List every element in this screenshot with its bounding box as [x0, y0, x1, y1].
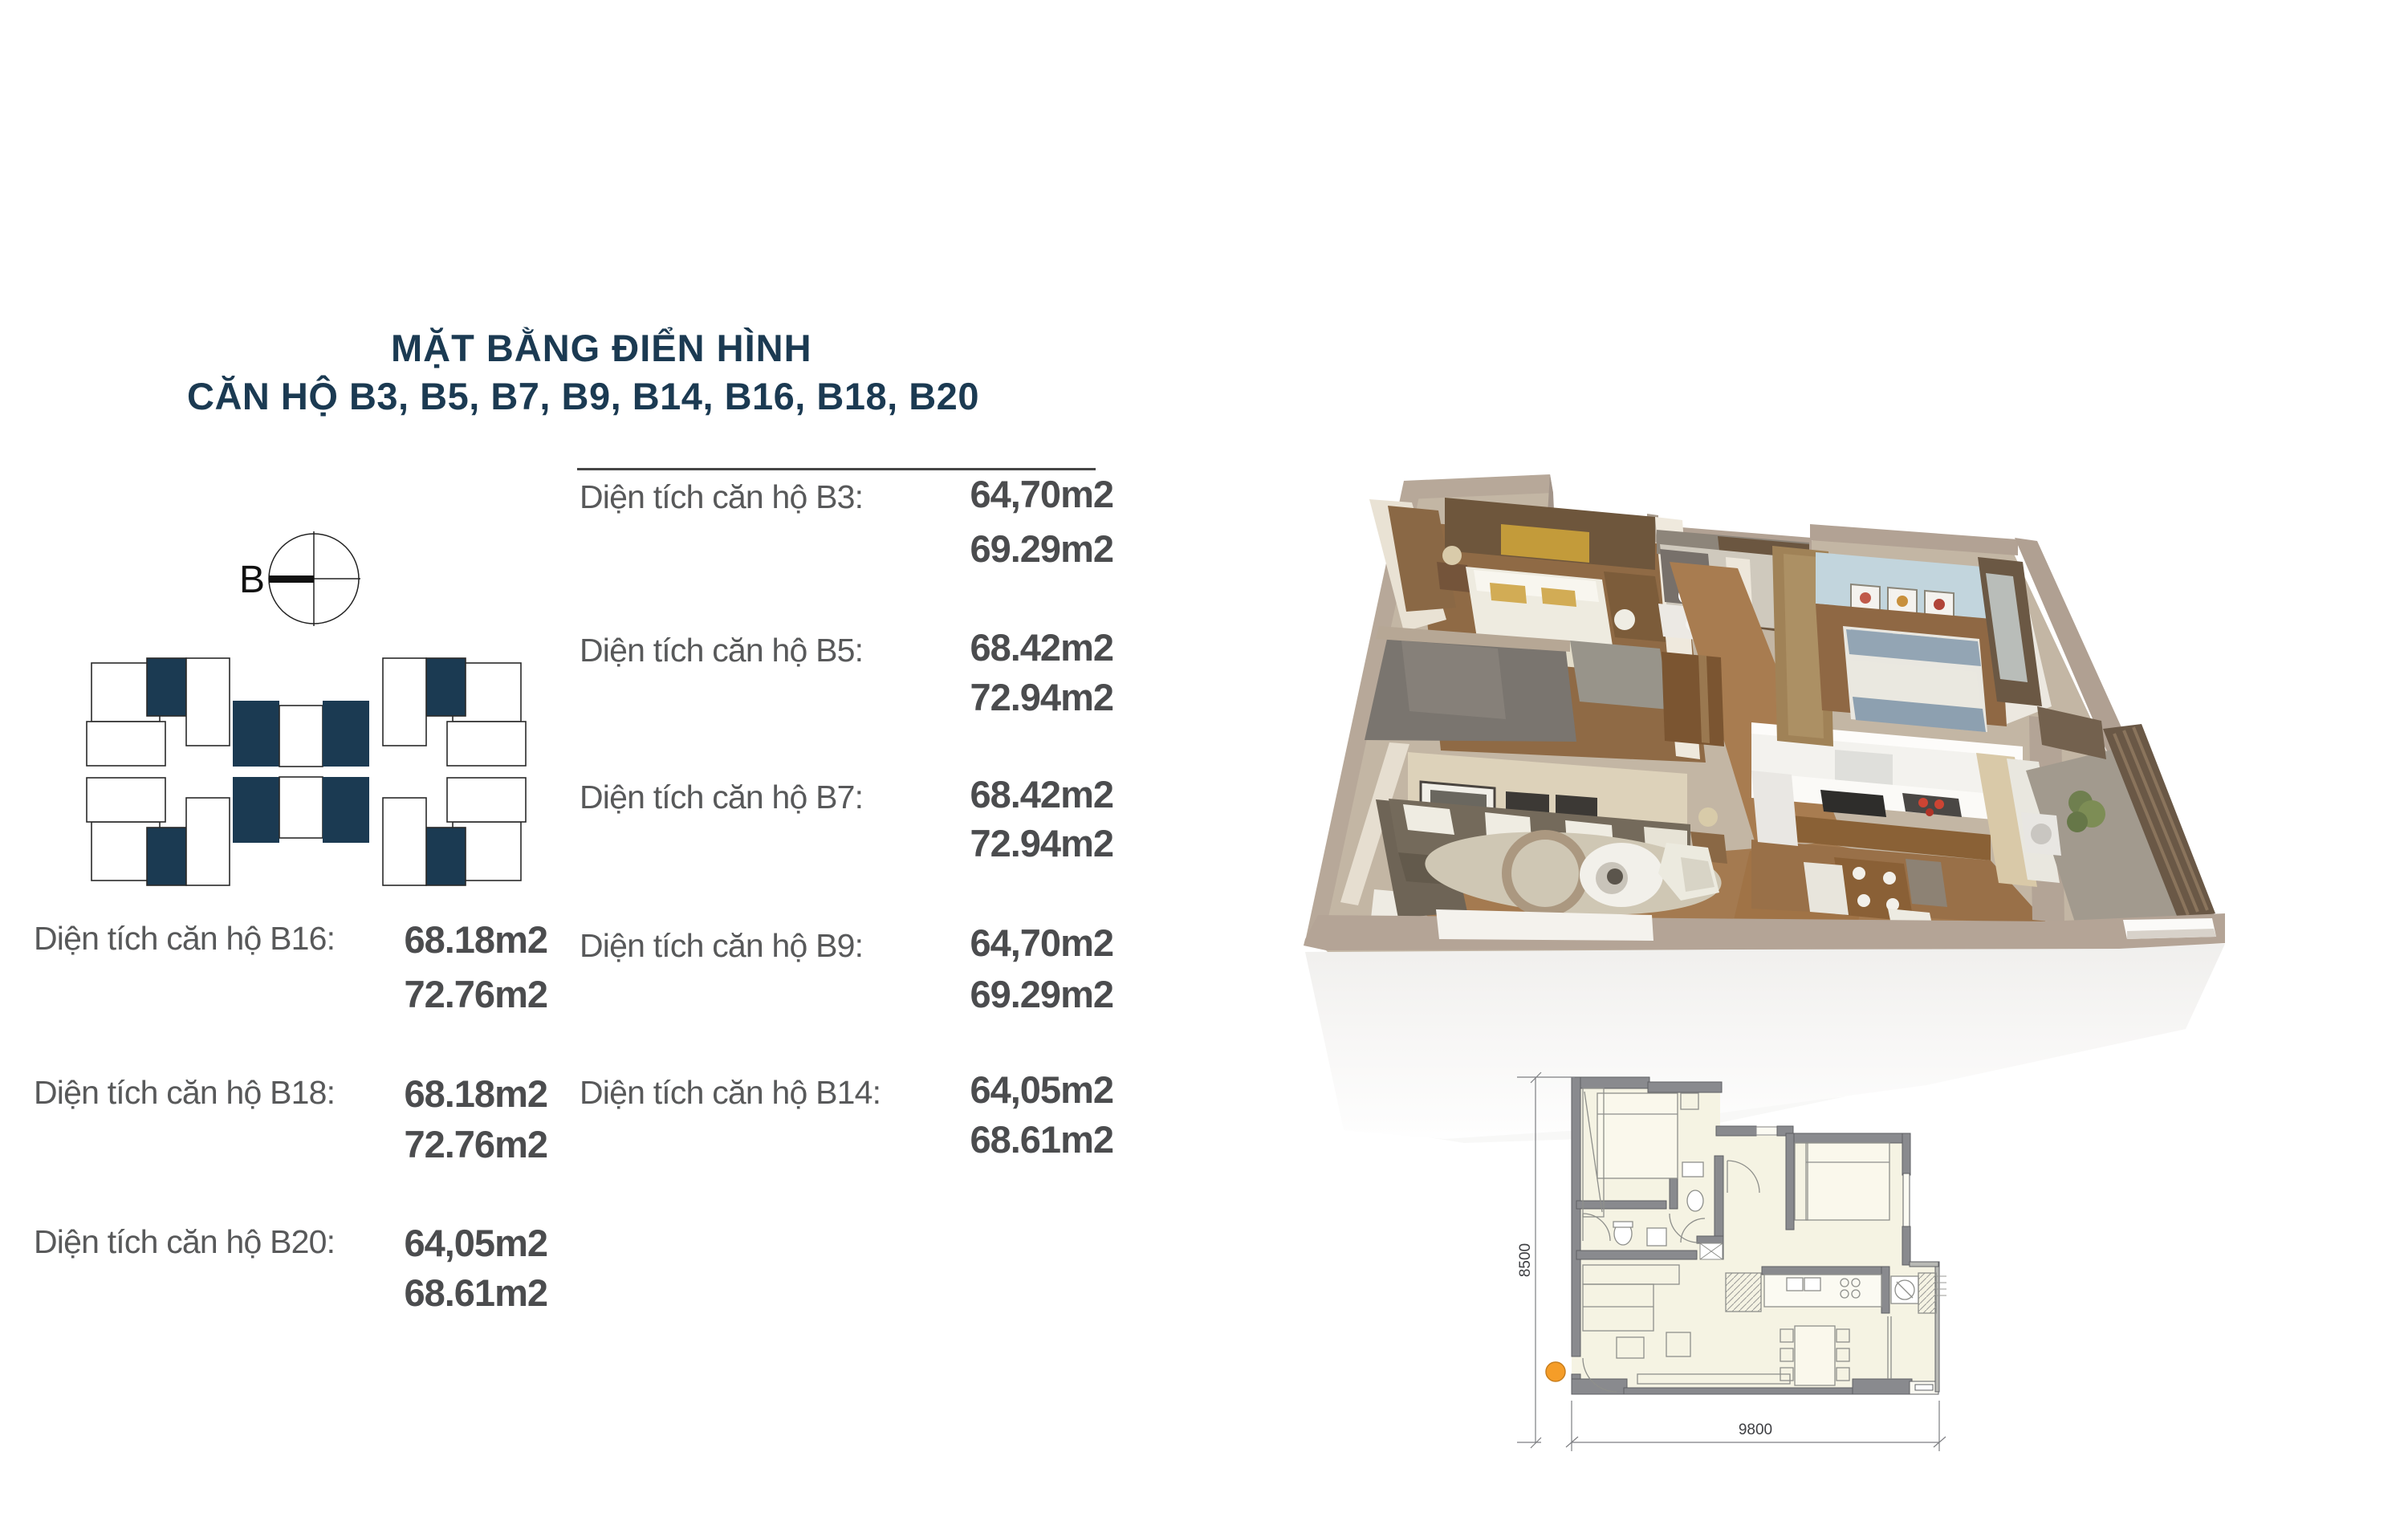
svg-text:8500: 8500 — [1517, 1243, 1534, 1277]
svg-text:B: B — [239, 559, 265, 601]
svg-text:9800: 9800 — [1739, 1421, 1772, 1438]
